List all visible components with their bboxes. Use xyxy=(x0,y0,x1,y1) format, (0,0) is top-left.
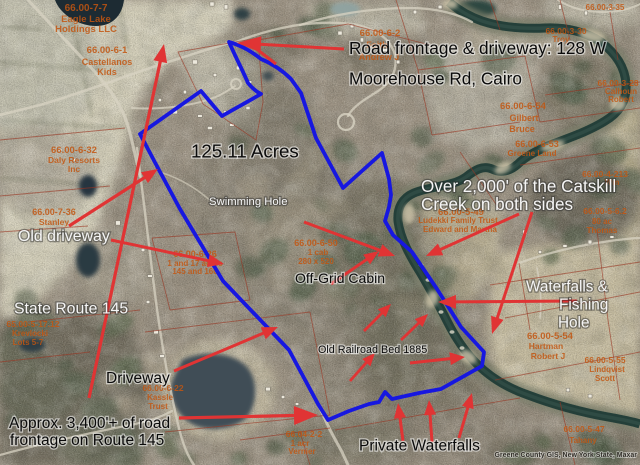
svg-text:Robert: Robert xyxy=(608,95,634,104)
svg-text:66.00-6-54: 66.00-6-54 xyxy=(500,101,547,112)
svg-text:Driveway: Driveway xyxy=(106,370,170,387)
svg-text:Castellanos: Castellanos xyxy=(82,57,133,67)
svg-text:Off-Grid Cabin: Off-Grid Cabin xyxy=(295,270,385,286)
svg-text:66.04-2-2: 66.04-2-2 xyxy=(286,429,323,439)
svg-text:Krevlocki: Krevlocki xyxy=(12,329,48,338)
svg-text:Thomas: Thomas xyxy=(587,226,618,235)
svg-text:145 and 160: 145 and 160 xyxy=(172,267,218,276)
svg-text:66.00-6-53: 66.00-6-53 xyxy=(515,139,559,149)
svg-text:280 x 520: 280 x 520 xyxy=(298,257,334,266)
svg-text:66.00-5-47: 66.00-5-47 xyxy=(563,424,604,434)
svg-text:Robert J: Robert J xyxy=(531,351,566,361)
svg-text:Tahany: Tahany xyxy=(569,436,597,445)
svg-text:66.00-7-7: 66.00-7-7 xyxy=(65,3,108,14)
svg-text:Moorehouse Rd, Cairo: Moorehouse Rd, Cairo xyxy=(349,69,522,89)
svg-text:Vernier: Vernier xyxy=(288,447,315,456)
svg-text:66.00-7-36: 66.00-7-36 xyxy=(32,207,76,217)
svg-text:Hole: Hole xyxy=(558,315,589,332)
svg-text:frontage on Route 145: frontage on Route 145 xyxy=(10,432,164,449)
svg-text:Creek on both sides: Creek on both sides xyxy=(421,195,573,214)
svg-text:80 ac: 80 ac xyxy=(592,217,613,226)
svg-text:Kassle: Kassle xyxy=(147,393,173,402)
svg-text:66.00-3-35: 66.00-3-35 xyxy=(586,3,625,12)
svg-text:Lots 5-7: Lots 5-7 xyxy=(13,338,44,347)
svg-text:Holdings LLC: Holdings LLC xyxy=(55,24,117,35)
svg-text:Inc: Inc xyxy=(68,164,81,174)
svg-text:65.00-5-17.12: 65.00-5-17.12 xyxy=(7,319,60,329)
svg-text:1 cab: 1 cab xyxy=(308,248,329,257)
svg-text:Ludekki Family Trust: Ludekki Family Trust xyxy=(418,216,498,225)
svg-text:Kids: Kids xyxy=(97,67,117,77)
svg-text:Lindqvist: Lindqvist xyxy=(589,365,625,374)
svg-text:Scott: Scott xyxy=(595,374,615,383)
svg-text:Old Railroad Bed 1885: Old Railroad Bed 1885 xyxy=(318,344,427,356)
svg-text:Hartman: Hartman xyxy=(529,341,563,351)
svg-text:Approx. 3,400'+ of road: Approx. 3,400'+ of road xyxy=(9,415,170,432)
svg-text:Old driveway: Old driveway xyxy=(18,228,110,245)
svg-text:Stanley: Stanley xyxy=(39,217,70,227)
svg-text:125.11 Acres: 125.11 Acres xyxy=(191,141,299,162)
svg-text:Over 2,000' of the Catskill: Over 2,000' of the Catskill xyxy=(421,177,616,196)
svg-text:Greene Land: Greene Land xyxy=(508,149,557,158)
svg-text:Private Waterfalls: Private Waterfalls xyxy=(359,438,480,455)
svg-text:66.00-5-6.2: 66.00-5-6.2 xyxy=(583,206,627,216)
svg-text:State Route 145: State Route 145 xyxy=(14,301,128,318)
svg-text:Waterfalls &: Waterfalls & xyxy=(526,279,608,296)
svg-text:Swimming Hole: Swimming Hole xyxy=(209,196,287,208)
svg-text:Road frontage & driveway: 128: Road frontage & driveway: 128 W xyxy=(349,38,607,58)
svg-text:Bruce: Bruce xyxy=(509,124,535,134)
svg-text:Fishing: Fishing xyxy=(559,297,608,314)
svg-text:Trust: Trust xyxy=(148,402,168,411)
svg-text:Gilbert: Gilbert xyxy=(509,113,538,123)
svg-text:66.00-6-50: 66.00-6-50 xyxy=(294,238,338,248)
svg-text:Greene County GIS, New York St: Greene County GIS, New York State, Maxar xyxy=(494,452,637,459)
svg-text:66.00-5-55: 66.00-5-55 xyxy=(584,355,625,365)
svg-text:66.00-6-1: 66.00-6-1 xyxy=(87,45,128,56)
